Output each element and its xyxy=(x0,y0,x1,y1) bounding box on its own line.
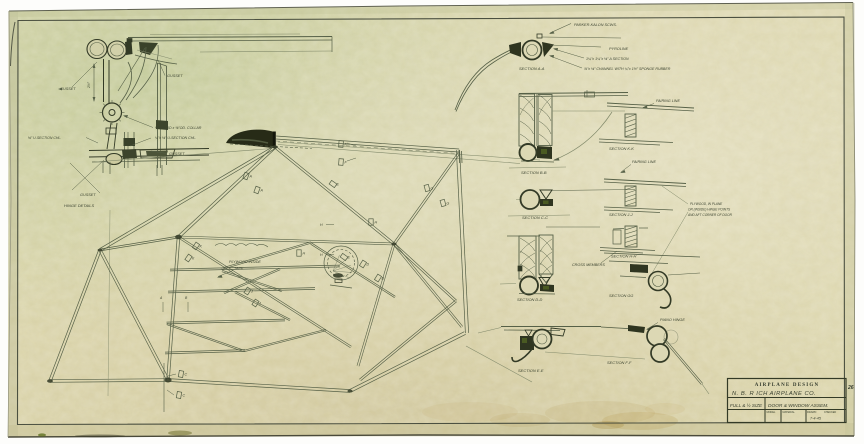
svg-text:CROSS MEMBERS: CROSS MEMBERS xyxy=(572,263,605,267)
svg-text:J: J xyxy=(258,302,261,306)
svg-text:N. B. R ICH AIRPLANE CO.: N. B. R ICH AIRPLANE CO. xyxy=(732,391,816,397)
svg-text:G: G xyxy=(431,187,434,191)
svg-text:C: C xyxy=(183,394,186,398)
svg-text:DOOR & WINDOW ASSEM.: DOOR & WINDOW ASSEM. xyxy=(768,403,829,409)
svg-text:2½": 2½" xyxy=(87,81,91,89)
svg-text:⅞"x ⅛" CHANNEL WITH ¼"x 1½" S: ⅞"x ⅛" CHANNEL WITH ¼"x 1½" SPONGE RUBBE… xyxy=(584,67,671,71)
svg-text:SECTION K-K: SECTION K-K xyxy=(609,146,634,151)
svg-text:H: H xyxy=(375,221,378,225)
svg-text:SECTION B-B: SECTION B-B xyxy=(521,170,547,175)
svg-text:H: H xyxy=(320,223,323,227)
svg-text:C: C xyxy=(185,373,188,377)
svg-text:SECTION GG: SECTION GG xyxy=(609,293,633,298)
svg-text:PIANO HINGE: PIANO HINGE xyxy=(660,318,685,322)
svg-text:SECTION C-C: SECTION C-C xyxy=(522,215,548,220)
svg-text:HINGE DETAILS: HINGE DETAILS xyxy=(64,203,94,208)
svg-text:CHECKED: CHECKED xyxy=(824,411,836,414)
svg-text:1¼"x 1¼"x ⅛" Δ SECTION: 1¼"x 1¼"x ⅛" Δ SECTION xyxy=(586,57,629,61)
svg-text:GUSSET: GUSSET xyxy=(60,87,76,91)
svg-text:SECTION D-D: SECTION D-D xyxy=(517,297,542,302)
svg-text:GUSSET: GUSSET xyxy=(80,193,96,197)
svg-text:A: A xyxy=(260,189,264,193)
svg-text:PLYWOOD, IN PLANE: PLYWOOD, IN PLANE xyxy=(690,202,723,206)
svg-text:OR (INSIDE) HINGE POINTS: OR (INSIDE) HINGE POINTS xyxy=(688,208,731,212)
svg-text:AIRPLANE DESIGN: AIRPLANE DESIGN xyxy=(755,383,820,388)
svg-text:TAPE: TAPE xyxy=(234,267,244,271)
svg-text:PLYWOOD INSIDE: PLYWOOD INSIDE xyxy=(229,260,261,264)
svg-text:7-4-45: 7-4-45 xyxy=(810,417,822,421)
svg-text:⅛" U-SECTION CHL.: ⅛" U-SECTION CHL. xyxy=(28,136,61,140)
svg-text:FULL & ½ SIZE: FULL & ½ SIZE xyxy=(730,402,763,408)
svg-text:PARKER-KALON SCWS.: PARKER-KALON SCWS. xyxy=(574,23,617,27)
svg-text:D: D xyxy=(367,263,370,267)
svg-text:FAIRING LINE: FAIRING LINE xyxy=(656,99,680,103)
svg-text:SECTION F-F: SECTION F-F xyxy=(607,360,632,365)
svg-text:AND AFT CORNER OF DOOR: AND AFT CORNER OF DOOR xyxy=(687,213,733,217)
svg-text:H: H xyxy=(320,253,323,257)
svg-text:A: A xyxy=(249,175,253,179)
svg-text:FAIRING LINE: FAIRING LINE xyxy=(632,160,656,164)
svg-text:MODEL: MODEL xyxy=(767,411,777,414)
svg-text:D: D xyxy=(382,277,385,281)
svg-text:DRAWN: DRAWN xyxy=(807,411,817,414)
svg-text:SECTION E-E: SECTION E-E xyxy=(518,368,544,373)
svg-text:¼"x ⅟₁₆"ID x ⅛"OD. COLLAR: ¼"x ⅟₁₆"ID x ⅛"OD. COLLAR xyxy=(155,126,202,130)
svg-text:J: J xyxy=(250,290,253,294)
svg-text:G: G xyxy=(447,202,450,206)
svg-text:¼"x ⅛" U-SECTION CHL.: ¼"x ⅛" U-SECTION CHL. xyxy=(155,136,196,140)
svg-text:H: H xyxy=(303,252,306,256)
svg-text:GUSSET: GUSSET xyxy=(167,74,183,78)
svg-text:SECTION A-A: SECTION A-A xyxy=(519,66,545,71)
svg-text:PYROLINE: PYROLINE xyxy=(609,47,629,51)
svg-text:SECTION J-J: SECTION J-J xyxy=(609,212,633,217)
svg-text:26: 26 xyxy=(847,385,854,391)
svg-text:MATERIAL: MATERIAL xyxy=(783,411,796,414)
